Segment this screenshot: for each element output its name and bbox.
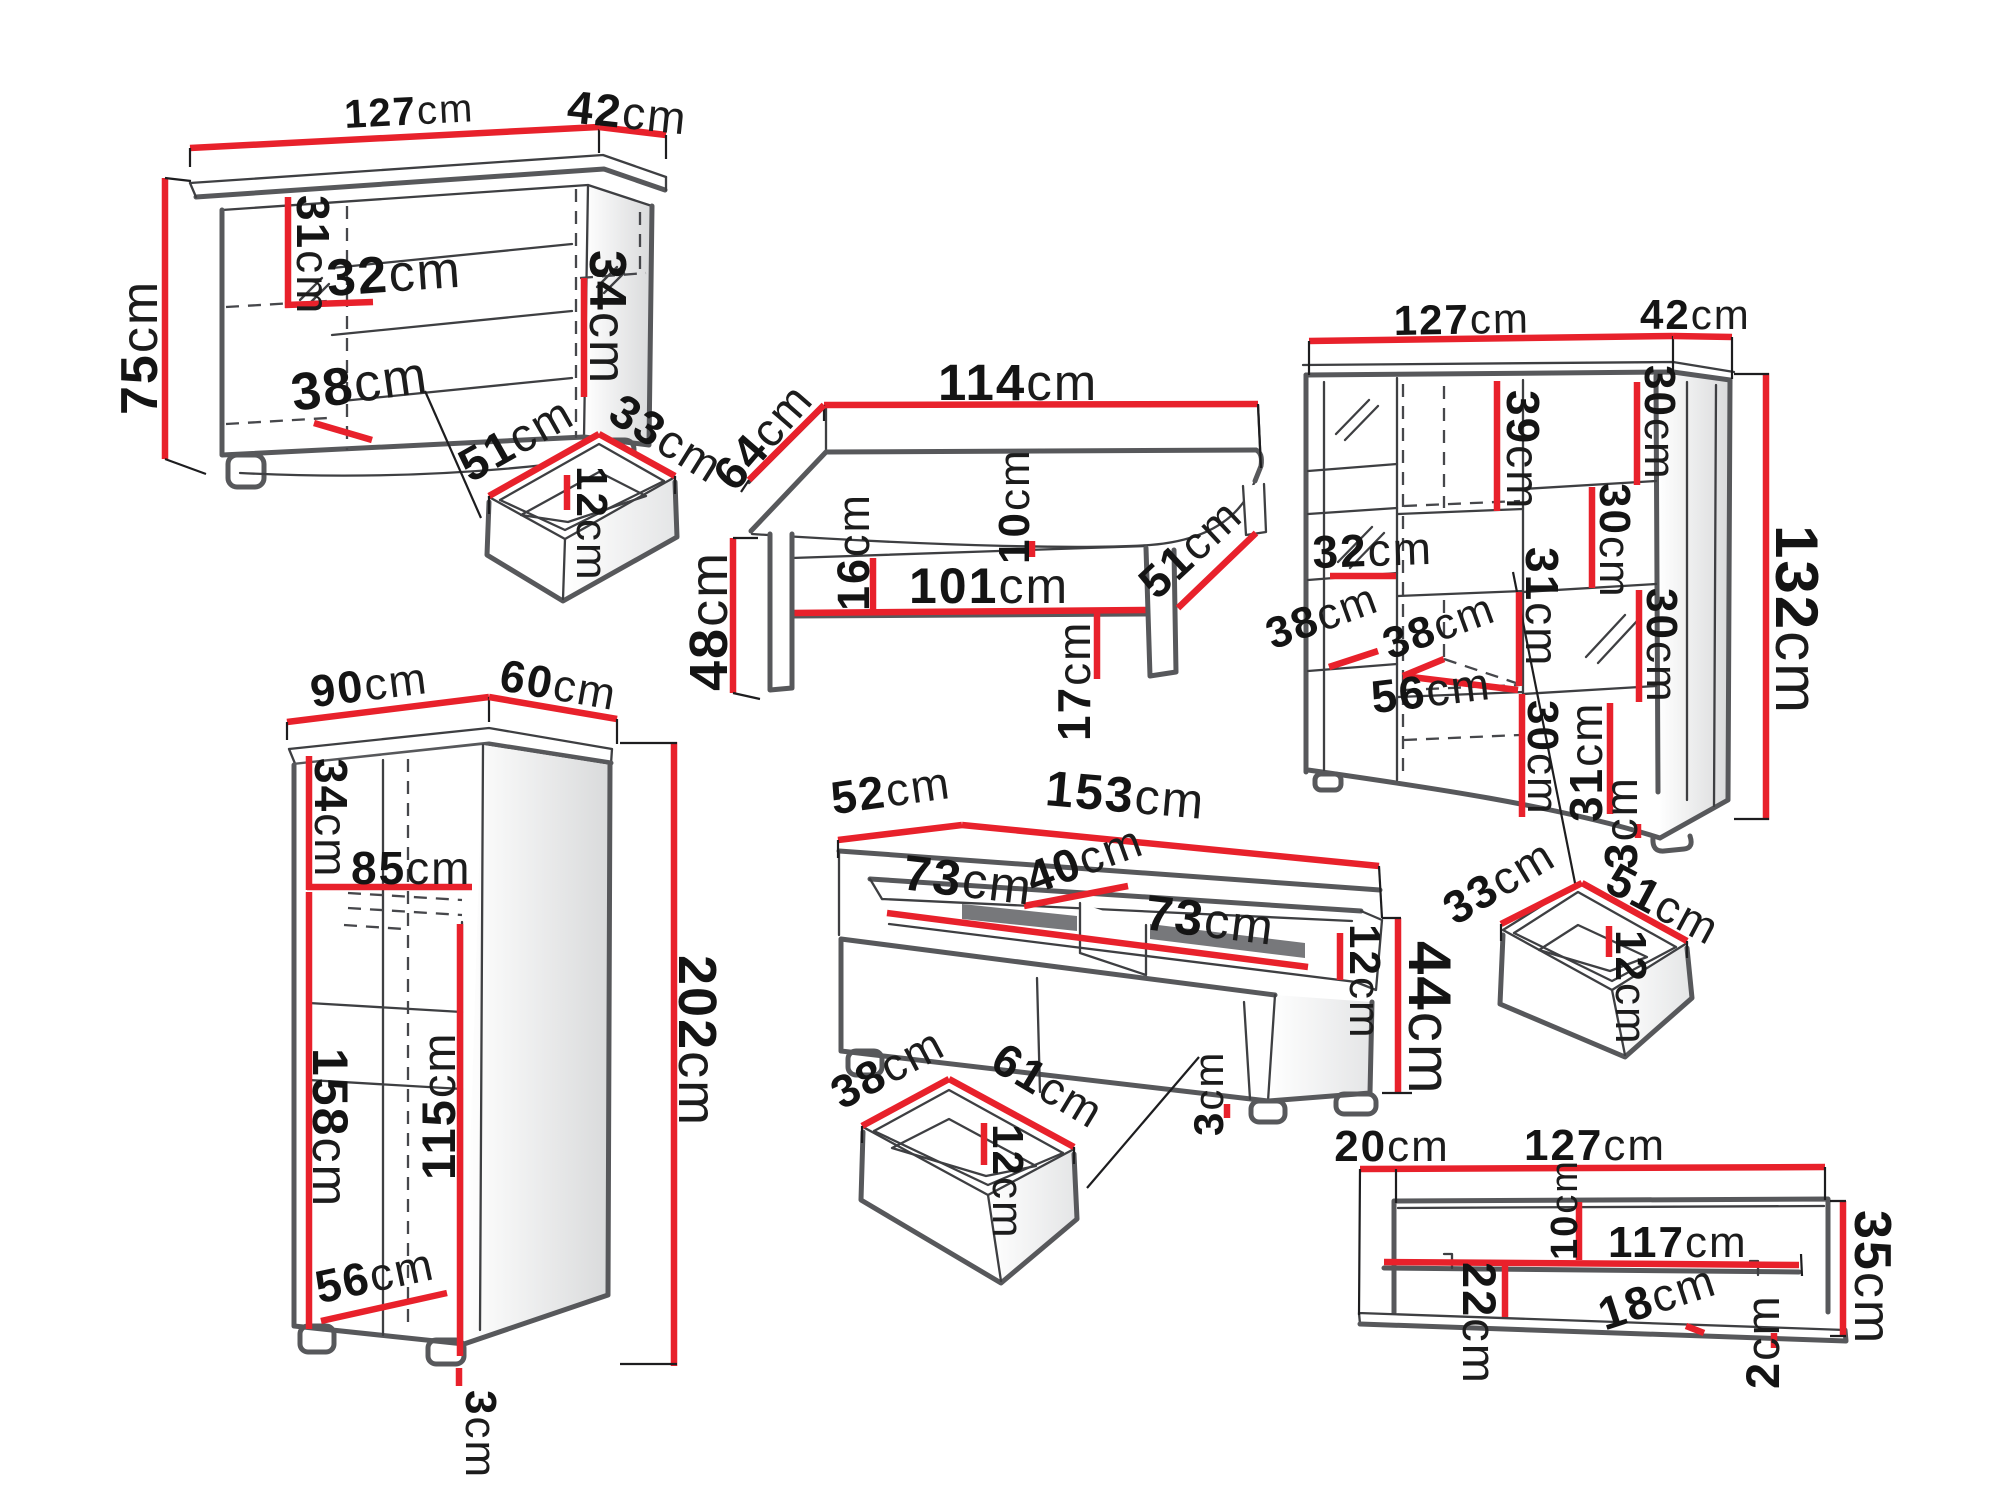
svg-text:48cm: 48cm: [679, 551, 739, 691]
svg-text:20cm: 20cm: [1334, 1122, 1450, 1171]
svg-text:12cm: 12cm: [567, 466, 616, 582]
svg-text:132cm: 132cm: [1763, 525, 1830, 715]
svg-text:101cm: 101cm: [909, 558, 1069, 614]
svg-text:34cm: 34cm: [578, 250, 636, 385]
svg-text:127cm: 127cm: [343, 86, 475, 137]
svg-text:10cm: 10cm: [990, 448, 1039, 564]
svg-text:34cm: 34cm: [305, 758, 357, 879]
svg-text:85cm: 85cm: [351, 842, 472, 894]
svg-text:44cm: 44cm: [1396, 941, 1463, 1096]
svg-text:22cm: 22cm: [1453, 1262, 1506, 1385]
svg-text:12cm: 12cm: [983, 1124, 1032, 1240]
svg-text:158cm: 158cm: [302, 1048, 358, 1208]
svg-text:75cm: 75cm: [111, 280, 169, 415]
svg-text:35cm: 35cm: [1843, 1210, 1901, 1345]
svg-text:115cm: 115cm: [412, 1032, 465, 1180]
svg-text:114cm: 114cm: [938, 354, 1098, 411]
svg-text:127cm: 127cm: [1393, 295, 1530, 344]
svg-text:117cm: 117cm: [1608, 1218, 1748, 1267]
svg-text:2cm: 2cm: [1736, 1294, 1789, 1389]
svg-text:3cm: 3cm: [1185, 1051, 1232, 1136]
svg-text:202cm: 202cm: [667, 955, 727, 1127]
svg-text:10cm: 10cm: [1544, 1159, 1586, 1260]
svg-text:42cm: 42cm: [1640, 291, 1751, 338]
svg-text:32cm: 32cm: [1312, 522, 1434, 578]
svg-text:31cm: 31cm: [1516, 547, 1568, 668]
svg-text:30cm: 30cm: [1590, 483, 1639, 599]
svg-text:30cm: 30cm: [1635, 365, 1684, 481]
svg-text:16cm: 16cm: [828, 493, 879, 611]
svg-text:12cm: 12cm: [1340, 924, 1389, 1040]
svg-text:12cm: 12cm: [1606, 930, 1655, 1046]
svg-text:17cm: 17cm: [1048, 621, 1100, 742]
svg-text:39cm: 39cm: [1497, 390, 1549, 511]
svg-text:3cm: 3cm: [456, 1390, 505, 1479]
svg-text:32cm: 32cm: [325, 241, 464, 308]
svg-text:30cm: 30cm: [1637, 588, 1686, 704]
